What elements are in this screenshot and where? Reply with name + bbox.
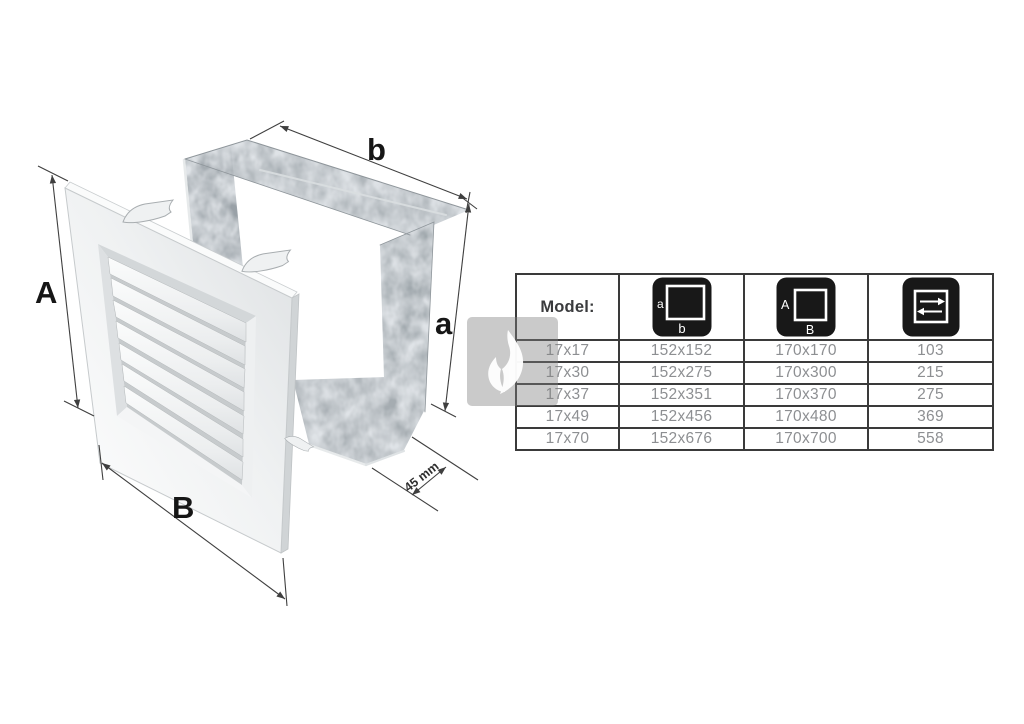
brand-watermark (467, 317, 558, 406)
dim-label-A: A (35, 275, 57, 310)
clip-top-right (242, 250, 291, 272)
spec-row: 17x30 152x275 170x300 215 (516, 362, 993, 384)
vent-grille-spec-page: { "colors": { "table_border": "#3a3a3a",… (0, 0, 1024, 724)
airflow-arrows-icon (902, 277, 960, 337)
flame-icon (467, 317, 558, 406)
spec-row: 17x37 152x351 170x370 275 (516, 384, 993, 406)
inner-dimensions-icon: a b (652, 277, 712, 337)
spec-row: 17x49 152x456 170x480 369 (516, 406, 993, 428)
icon-label-b: b (678, 321, 685, 336)
inner-dimensions-header-cell: a b (619, 274, 744, 340)
airflow-cell: 103 (868, 340, 993, 362)
inner-dim-cell: 152x351 (619, 384, 744, 406)
dim-label-depth: 45 mm (402, 459, 442, 494)
inner-dim-cell: 152x152 (619, 340, 744, 362)
icon-label-B: B (806, 323, 814, 337)
outer-dim-cell: 170x170 (744, 340, 868, 362)
airflow-cell: 558 (868, 428, 993, 450)
outer-dimensions-icon: A B (776, 277, 836, 337)
dim-label-B: B (172, 490, 194, 525)
outer-dim-cell: 170x480 (744, 406, 868, 428)
model-cell: 17x49 (516, 406, 619, 428)
airflow-header-cell (868, 274, 993, 340)
spec-table: Model: a b A B (515, 273, 994, 451)
outer-dim-cell: 170x370 (744, 384, 868, 406)
airflow-cell: 369 (868, 406, 993, 428)
outer-dimensions-header-cell: A B (744, 274, 868, 340)
icon-label-A: A (781, 298, 790, 312)
clip-top-left (123, 200, 173, 223)
dim-label-a: a (435, 306, 453, 341)
airflow-cell: 275 (868, 384, 993, 406)
model-cell: 17x70 (516, 428, 619, 450)
dim-label-b: b (367, 132, 386, 167)
spec-row: 17x70 152x676 170x700 558 (516, 428, 993, 450)
spec-table-header: Model: a b A B (516, 274, 993, 340)
outer-dim-cell: 170x700 (744, 428, 868, 450)
inner-dim-cell: 152x275 (619, 362, 744, 384)
spec-row: 17x17 152x152 170x170 103 (516, 340, 993, 362)
inner-dim-cell: 152x456 (619, 406, 744, 428)
airflow-cell: 215 (868, 362, 993, 384)
outer-dim-cell: 170x300 (744, 362, 868, 384)
icon-label-a: a (657, 297, 664, 311)
inner-dim-cell: 152x676 (619, 428, 744, 450)
